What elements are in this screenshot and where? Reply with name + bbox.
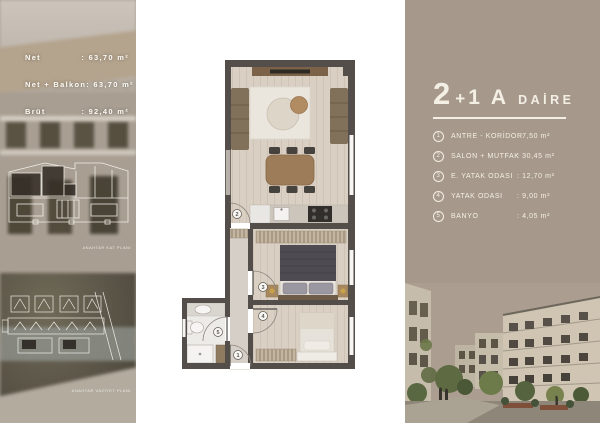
unit-title-block: 2 + 1 A DAİRE (405, 0, 600, 119)
room-number-badge: 4 (433, 191, 444, 202)
render-ground (405, 397, 600, 423)
room-row-antre: 1 ANTRE - KORİDOR : 7,50 m² (433, 131, 600, 142)
room-area: : 4,05 m² (517, 213, 550, 220)
room-area: : 12,70 m² (517, 173, 555, 180)
room-list: 1 ANTRE - KORİDOR : 7,50 m² 2 SALON + MU… (405, 131, 600, 222)
room-area: : 30,45 m² (517, 153, 555, 160)
complex-render-image (405, 283, 600, 423)
measurement-label: Brüt (25, 107, 46, 116)
measurement-row-brut: Brüt : 92,40 m² (0, 107, 136, 116)
room-label: SALON + MUTFAK (451, 153, 517, 160)
room-label: ANTRE - KORİDOR (451, 133, 517, 140)
unit-title-type: DAİRE (518, 93, 574, 107)
unit-title-number: 2 (433, 78, 450, 109)
room-row-banyo: 5 BANYO : 4,05 m² (433, 211, 600, 222)
unit-info-panel: 2 + 1 A DAİRE 1 ANTRE - KORİDOR : 7,50 m… (405, 0, 600, 423)
unit-title-suffix-number: 1 A (468, 86, 509, 110)
measurement-label: Net + Balkon (25, 80, 86, 89)
door-number-5: 5 (216, 330, 219, 336)
corridor-closet (230, 229, 248, 238)
room-label: YATAK ODASI (451, 193, 517, 200)
room-row-bedroom: 4 YATAK ODASI : 9,00 m² (433, 191, 600, 202)
room-number-badge: 2 (433, 151, 444, 162)
room-row-salon: 2 SALON + MUTFAK : 30,45 m² (433, 151, 600, 162)
measurement-label: Net (25, 53, 41, 62)
unit-title-plus: + (455, 89, 465, 109)
room-label: E. YATAK ODASI (451, 173, 517, 180)
key-plan-caption: ANAHTAR KAT PLANI (82, 245, 131, 250)
measurement-value: : 92,40 m² (81, 107, 129, 116)
key-floor-plan (5, 150, 133, 238)
room-row-master: 3 E. YATAK ODASI : 12,70 m² (433, 171, 600, 182)
measurement-row-net: Net : 63,70 m² (0, 53, 136, 62)
measurement-value: : 63,70 m² (81, 53, 129, 62)
door-number-1: 1 (236, 353, 239, 359)
room-number-badge: 5 (433, 211, 444, 222)
room-number-badge: 3 (433, 171, 444, 182)
door-number-2: 2 (235, 212, 238, 218)
measurement-row-net-balkon: Net + Balkon : 63,70 m² (0, 80, 136, 89)
floor-plan: 1 2 3 4 5 (170, 55, 365, 370)
room-area: : 9,00 m² (517, 193, 550, 200)
measurement-value: : 63,70 m² (86, 80, 134, 89)
title-underline (433, 117, 566, 119)
key-site-plan (2, 290, 124, 364)
unit-title: 2 + 1 A DAİRE (433, 78, 600, 110)
area-measurements: Net : 63,70 m² Net + Balkon : 63,70 m² B… (0, 53, 136, 134)
room-number-badge: 1 (433, 131, 444, 142)
room-area: : 7,50 m² (517, 133, 550, 140)
kitchen-counter (250, 205, 348, 223)
project-photo-panel: Net : 63,70 m² Net + Balkon : 63,70 m² B… (0, 0, 136, 423)
site-plan-caption: ANAHTAR VAZİYET PLANI (72, 388, 131, 393)
room-label: BANYO (451, 213, 517, 220)
brochure-page: Net : 63,70 m² Net + Balkon : 63,70 m² B… (0, 0, 600, 423)
door-number-3: 3 (261, 285, 264, 291)
